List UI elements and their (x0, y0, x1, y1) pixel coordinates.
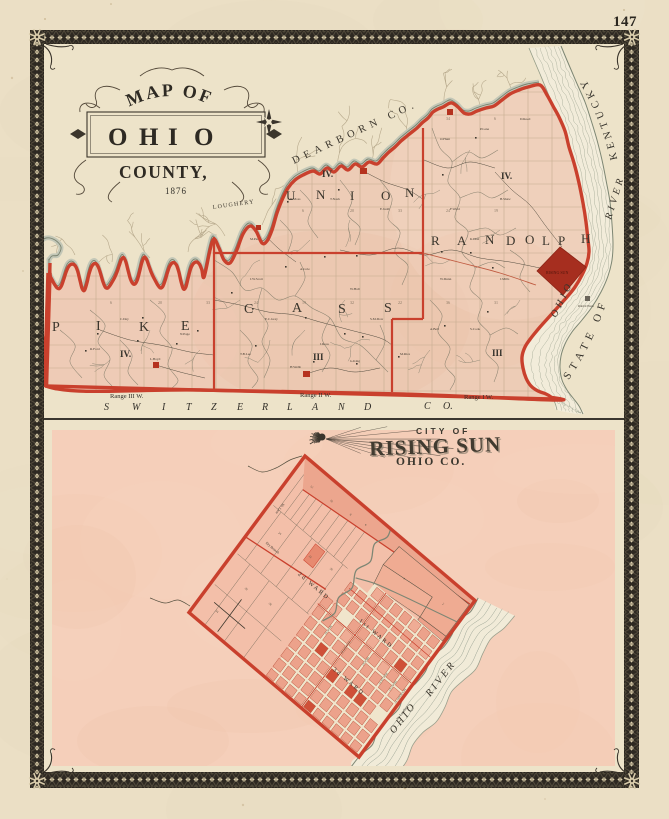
svg-text:24: 24 (446, 208, 450, 213)
svg-text:C.Day: C.Day (120, 317, 129, 321)
svg-text:6: 6 (110, 300, 112, 305)
svg-text:36: 36 (446, 300, 450, 305)
svg-text:COUNTY,: COUNTY, (119, 162, 208, 182)
svg-text:Range III W.: Range III W. (110, 393, 144, 400)
svg-text:E.Judd: E.Judd (380, 207, 390, 211)
svg-text:33: 33 (398, 208, 402, 213)
svg-text:III: III (313, 352, 324, 362)
svg-text:F.Ward: F.Ward (450, 207, 460, 211)
svg-text:6: 6 (302, 208, 304, 213)
svg-text:Range II W.: Range II W. (300, 392, 332, 399)
svg-text:S.Cook: S.Cook (470, 327, 480, 331)
svg-text:B.Shaw: B.Shaw (500, 197, 511, 201)
svg-text:W.Hall: W.Hall (350, 287, 360, 291)
svg-text:K.Holt: K.Holt (470, 237, 479, 241)
svg-text:IV.: IV. (501, 171, 512, 181)
svg-text:Range I W.: Range I W. (464, 394, 493, 401)
svg-text:20: 20 (158, 300, 162, 305)
svg-text:E.C.Gray: E.C.Gray (265, 317, 278, 321)
svg-text:D.Reed: D.Reed (520, 117, 531, 121)
svg-text:M.Rice: M.Rice (400, 352, 411, 356)
svg-text:1876: 1876 (165, 186, 187, 196)
svg-text:W.Dunn: W.Dunn (440, 277, 452, 281)
svg-text:S.M.Dow: S.M.Dow (370, 317, 384, 321)
svg-text:147: 147 (613, 14, 637, 30)
svg-text:O.Hunt: O.Hunt (440, 137, 450, 141)
svg-text:33: 33 (206, 300, 210, 305)
svg-text:34: 34 (446, 116, 450, 121)
svg-text:R.Ford: R.Ford (90, 347, 100, 351)
svg-text:IV.: IV. (322, 169, 333, 179)
svg-text:H.Webb: H.Webb (290, 365, 301, 369)
svg-text:24: 24 (254, 300, 258, 305)
svg-text:L.Boyd: L.Boyd (150, 357, 161, 361)
svg-text:T.B.Lee: T.B.Lee (240, 352, 251, 356)
svg-text:IV.: IV. (120, 349, 131, 359)
svg-text:P.Lane: P.Lane (480, 127, 490, 131)
svg-text:G.King: G.King (350, 359, 360, 363)
svg-text:19: 19 (494, 208, 498, 213)
svg-text:19: 19 (302, 300, 306, 305)
svg-text:J.Mills: J.Mills (500, 277, 510, 281)
svg-text:A.Cole: A.Cole (300, 267, 310, 271)
svg-text:T.Nash: T.Nash (330, 197, 340, 201)
svg-text:22: 22 (398, 300, 402, 305)
svg-text:III: III (492, 348, 503, 358)
svg-text:J.W.Scott: J.W.Scott (250, 277, 263, 281)
svg-text:A.Bell: A.Bell (430, 327, 439, 331)
svg-text:20: 20 (350, 208, 354, 213)
svg-text:J.Ross: J.Ross (320, 342, 329, 346)
svg-text:31: 31 (494, 300, 498, 305)
svg-text:6: 6 (494, 116, 496, 121)
svg-text:Rabbit Hash: Rabbit Hash (578, 304, 594, 308)
svg-text:32: 32 (350, 300, 354, 305)
svg-text:RISING SUN: RISING SUN (546, 270, 568, 275)
svg-text:OHIO CO.: OHIO CO. (396, 456, 466, 468)
